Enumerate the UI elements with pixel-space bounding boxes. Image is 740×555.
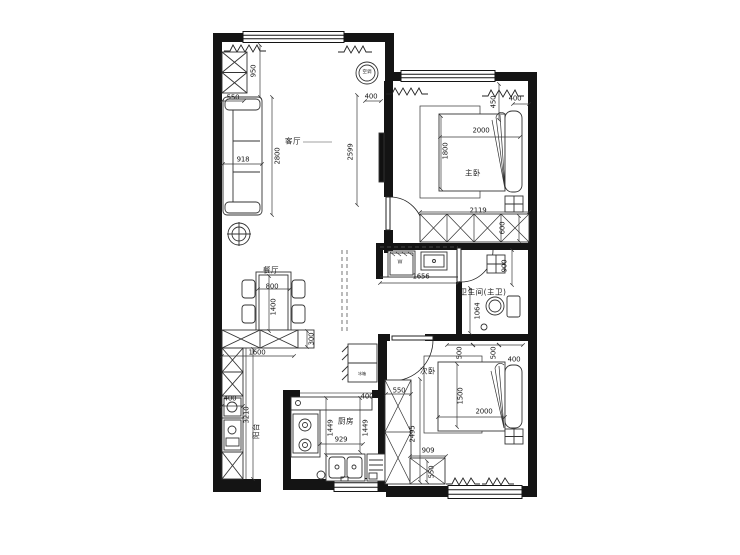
shower-drain	[487, 255, 505, 273]
floor-plan: 客厅主卧餐厅卫生间(主卫)次卧厨房阳台950550918280025994004…	[0, 0, 740, 555]
floor-drain-bathroom	[481, 324, 487, 330]
dining-table	[256, 272, 291, 333]
ac-unit-master	[505, 196, 523, 212]
ac-unit-second-bedroom	[505, 429, 523, 444]
window-living-top	[243, 32, 344, 43]
ac-unit-circle	[356, 62, 378, 84]
sofa	[223, 97, 262, 215]
floor-plan-drawing	[0, 0, 740, 555]
wardrobe-living	[222, 52, 247, 93]
window-master-top	[401, 71, 495, 82]
column-symbol	[227, 222, 251, 246]
floor-drain-kitchen	[317, 471, 325, 479]
window-bedroom-bottom	[448, 486, 522, 499]
laundry-counter	[380, 251, 458, 277]
balcony-cabinets	[222, 348, 243, 479]
second-bed	[424, 356, 522, 433]
cabinet-dining	[222, 330, 314, 348]
kitchen-cabinet-right	[367, 454, 385, 481]
door-master	[386, 197, 423, 230]
furniture	[222, 52, 529, 484]
door-second-bedroom	[392, 336, 433, 381]
toilet	[486, 296, 520, 317]
desk-cabinet	[410, 458, 445, 484]
fridge	[342, 344, 377, 382]
kitchen-sink	[326, 454, 365, 481]
tv	[379, 133, 384, 182]
master-bed	[420, 106, 522, 198]
stove	[291, 410, 320, 457]
wardrobe-master	[420, 214, 529, 242]
wardrobe-second-bedroom	[385, 380, 411, 484]
